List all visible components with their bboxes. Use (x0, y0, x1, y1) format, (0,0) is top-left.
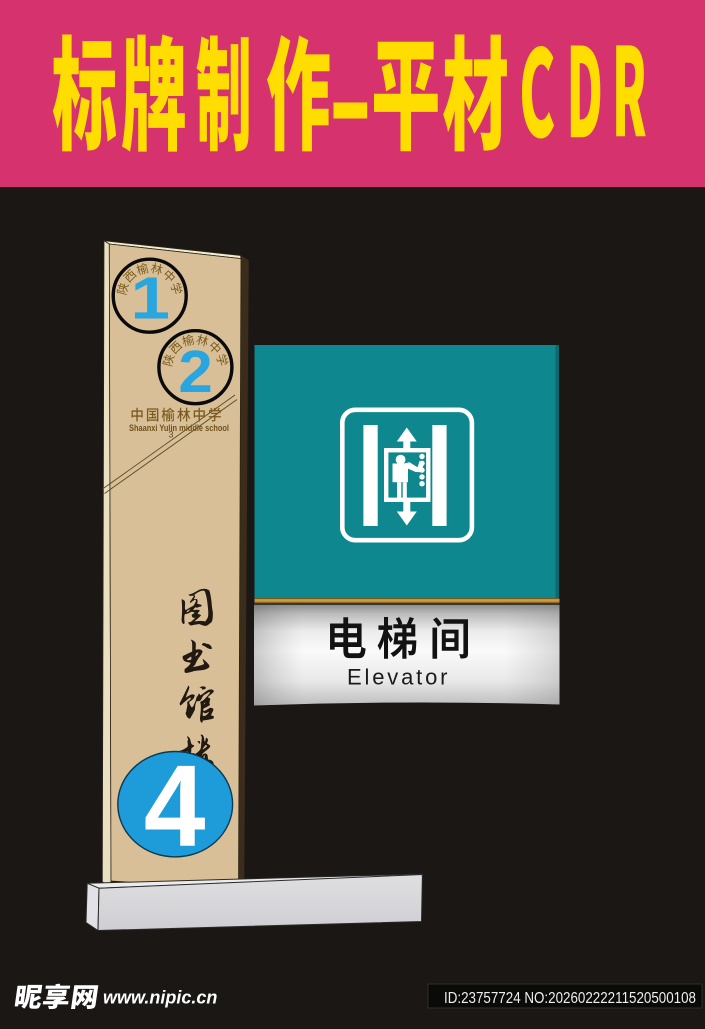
svg-text:Shaanxi Yulin middle school: Shaanxi Yulin middle school (129, 423, 229, 433)
svg-text:ID:23757724 NO:202602222115205: ID:23757724 NO:20260222211520500108 (444, 990, 696, 1007)
svg-text:www.nipic.cn: www.nipic.cn (103, 988, 217, 1008)
